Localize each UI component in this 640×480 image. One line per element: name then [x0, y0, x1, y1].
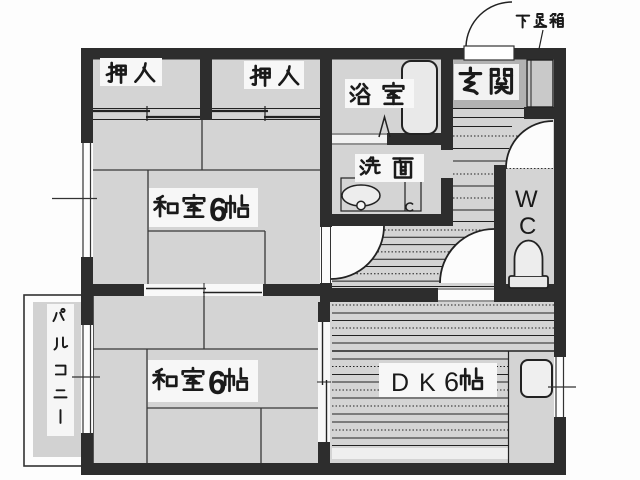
svg-text:C: C — [519, 213, 536, 240]
svg-text:K: K — [419, 369, 436, 397]
svg-text:D: D — [391, 369, 409, 397]
svg-text:6: 6 — [444, 367, 459, 397]
svg-text:6: 6 — [209, 191, 227, 228]
svg-text:6: 6 — [208, 364, 226, 401]
svg-text:W: W — [515, 186, 538, 213]
